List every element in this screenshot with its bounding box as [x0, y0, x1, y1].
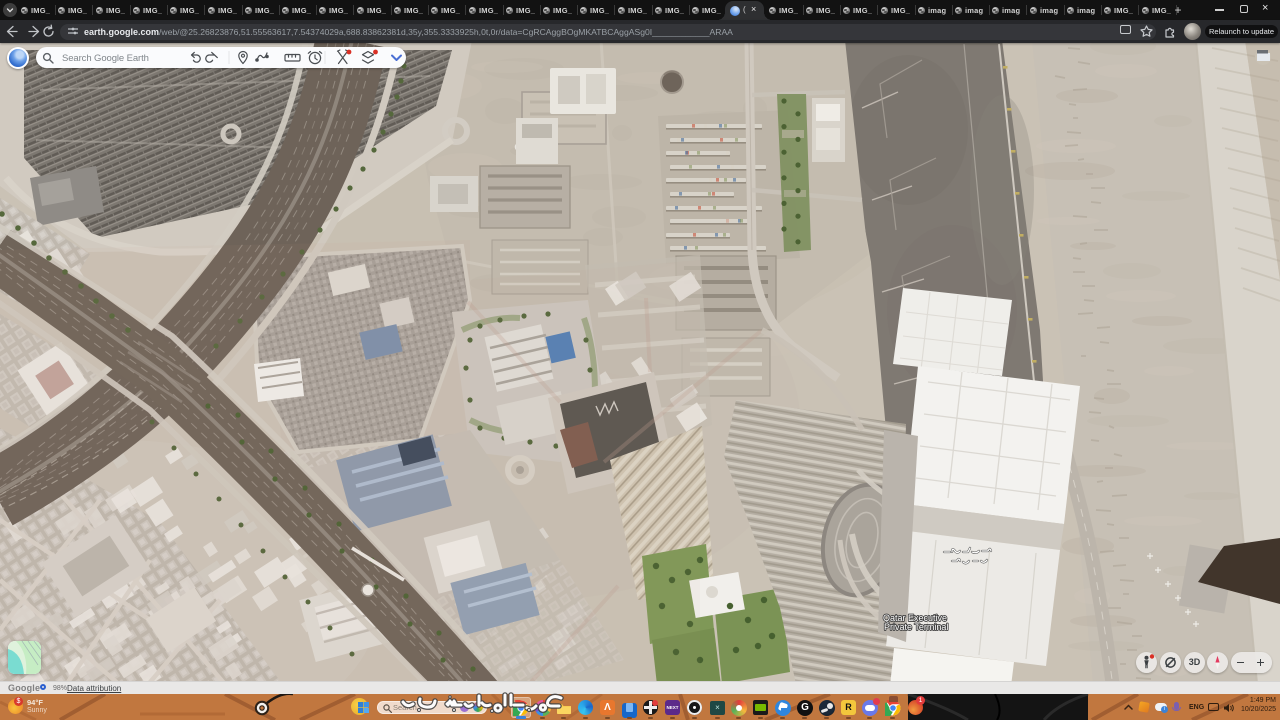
svg-text:Private Terminal: Private Terminal — [884, 622, 948, 632]
